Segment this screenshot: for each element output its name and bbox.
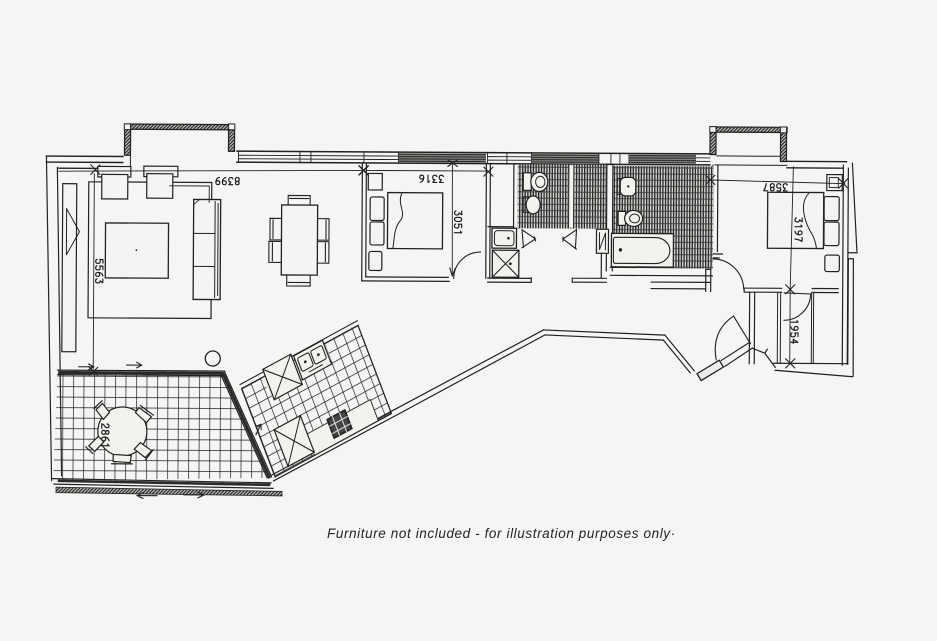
svg-text:Furniture not included - for i: Furniture not included - for illustratio… <box>327 526 676 541</box>
